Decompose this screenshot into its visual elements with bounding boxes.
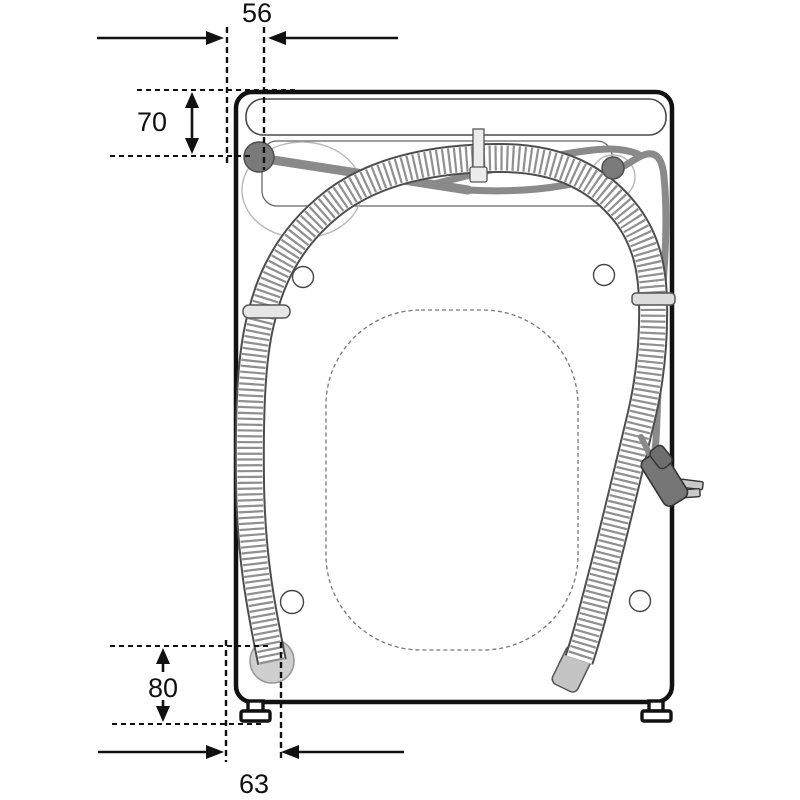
- right-hose-clip: [632, 293, 675, 305]
- dimension-label-63: 63: [239, 769, 269, 799]
- dimension-label-70: 70: [137, 107, 167, 137]
- screw-hole-icon: [281, 591, 304, 614]
- right-foot-base: [642, 711, 671, 721]
- screw-hole-icon: [630, 591, 651, 612]
- screw-hole-icon: [293, 267, 314, 288]
- left-foot-base: [241, 711, 270, 721]
- diagram-canvas: 56 70 80 63: [0, 0, 800, 800]
- right-inlet-valve: [602, 157, 624, 179]
- top-hose-clip-foot: [470, 167, 487, 182]
- dimension-63: 63: [98, 745, 404, 799]
- screw-hole-icon: [594, 265, 615, 286]
- top-cover-strip: [246, 99, 666, 135]
- left-hose-clip: [243, 305, 290, 318]
- appliance-rear-diagram: 56 70 80 63: [0, 0, 800, 800]
- dimension-56: 56: [97, 0, 398, 45]
- dimension-label-80: 80: [148, 673, 178, 703]
- dimension-label-56: 56: [242, 0, 272, 28]
